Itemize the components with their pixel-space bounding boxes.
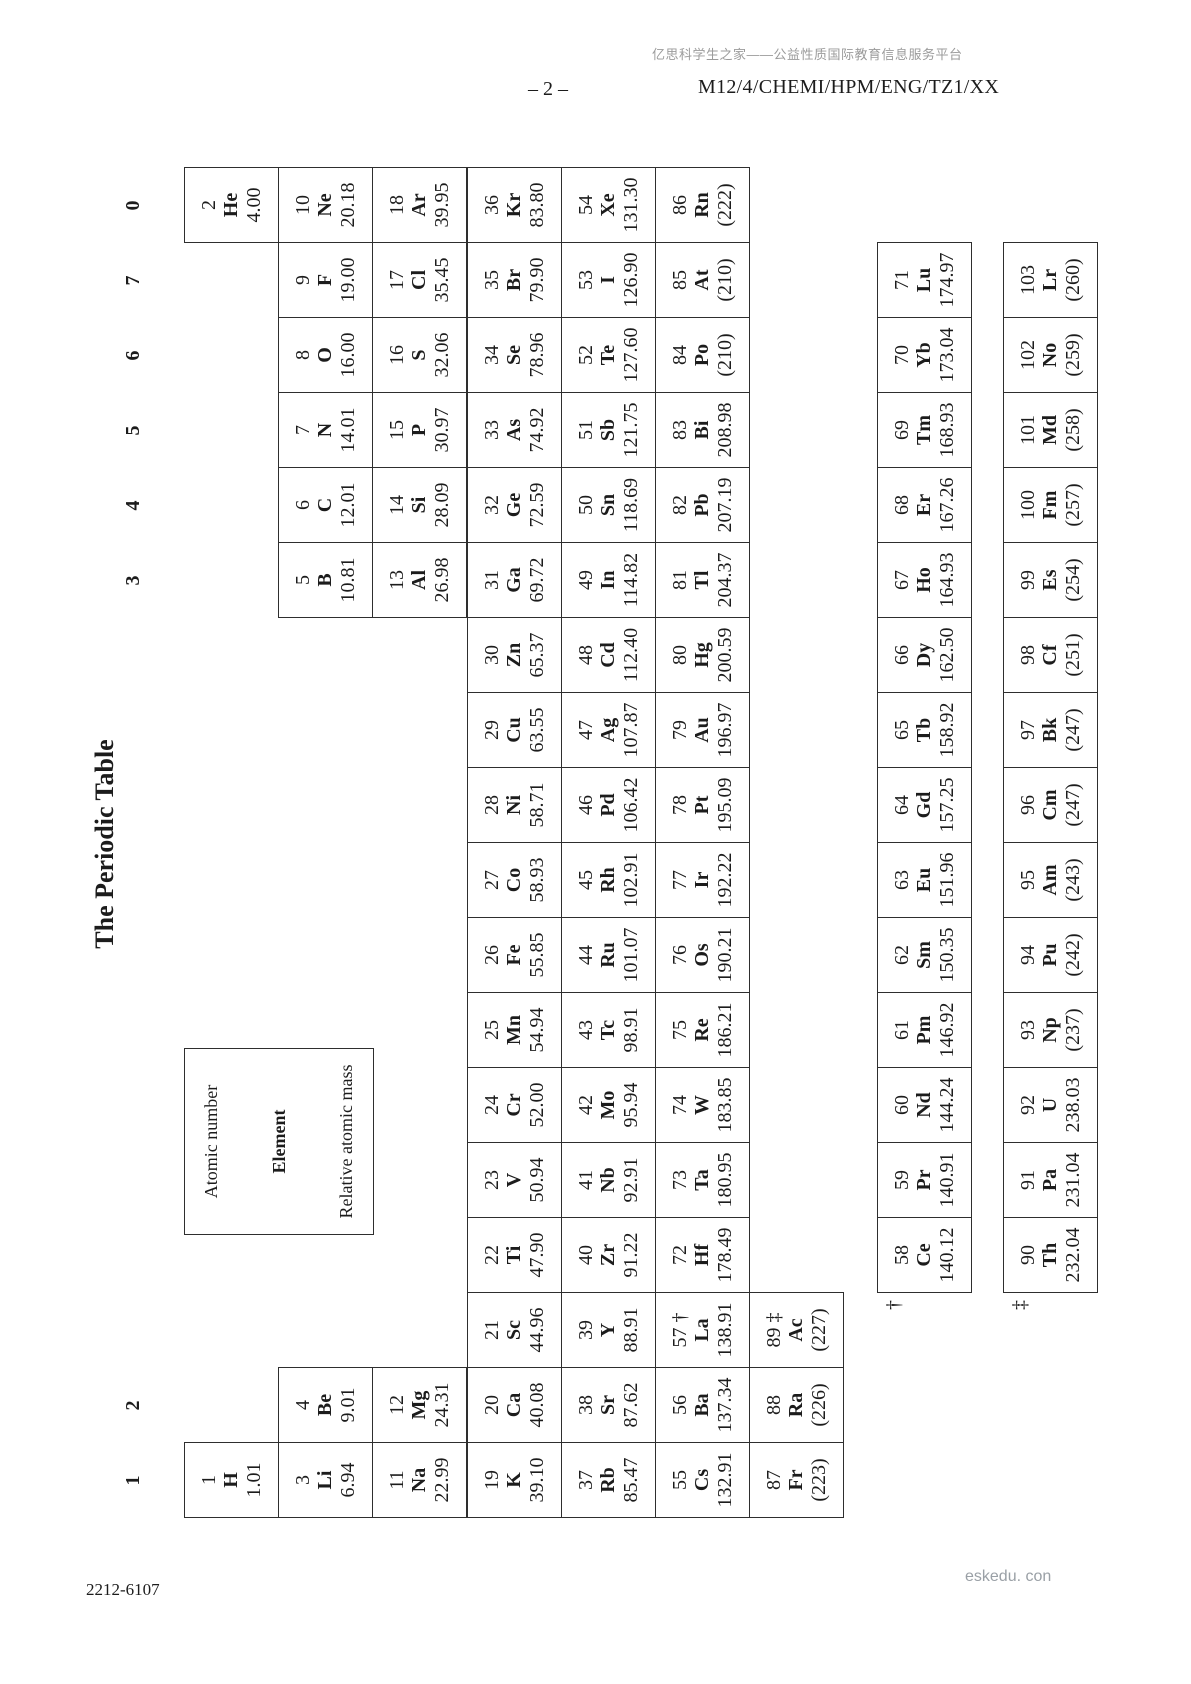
- element-cell-Np: 93Np(237): [1003, 992, 1098, 1068]
- relative-atomic-mass: 19.00: [337, 258, 360, 303]
- element-symbol: Np: [1039, 1017, 1062, 1043]
- element-symbol: Ne: [314, 193, 337, 216]
- element-cell-Tc: 43Tc98.91: [561, 992, 656, 1068]
- element-cell-Ra: 88Ra(226): [749, 1367, 844, 1443]
- element-symbol: Os: [691, 943, 714, 966]
- element-cell-Mg: 12Mg24.31: [372, 1367, 467, 1443]
- element-cell-Be: 4Be9.01: [278, 1367, 373, 1443]
- atomic-number: 59: [891, 1170, 914, 1190]
- element-cell-Pd: 46Pd106.42: [561, 767, 656, 843]
- atomic-number: 55: [669, 1470, 692, 1490]
- element-cell-Xe: 54Xe131.30: [561, 167, 656, 243]
- element-symbol: Ac: [785, 1318, 808, 1341]
- element-symbol: Cs: [691, 1469, 714, 1491]
- relative-atomic-mass: 168.93: [936, 403, 959, 458]
- element-cell-Ni: 28Ni58.71: [467, 767, 562, 843]
- element-cell-Al: 13Al26.98: [372, 542, 467, 618]
- relative-atomic-mass: (243): [1062, 858, 1085, 901]
- element-cell-Cs: 55Cs132.91: [655, 1442, 750, 1518]
- element-cell-Co: 27Co58.93: [467, 842, 562, 918]
- element-cell-Md: 101Md(258): [1003, 392, 1098, 468]
- relative-atomic-mass: 132.91: [714, 1453, 737, 1508]
- relative-atomic-mass: 47.90: [526, 1233, 549, 1278]
- element-symbol: U: [1039, 1098, 1062, 1112]
- element-cell-Pm: 61Pm146.92: [877, 992, 972, 1068]
- relative-atomic-mass: 131.30: [620, 178, 643, 233]
- relative-atomic-mass: 138.91: [714, 1303, 737, 1358]
- element-symbol: Cl: [408, 270, 431, 290]
- element-cell-V: 23V50.94: [467, 1142, 562, 1218]
- element-cell-Th: 90Th232.04: [1003, 1217, 1098, 1293]
- element-cell-Te: 52Te127.60: [561, 317, 656, 393]
- element-symbol: Ge: [503, 493, 526, 517]
- relative-atomic-mass: 173.04: [936, 328, 959, 383]
- document-code: 2212-6107: [86, 1580, 160, 1600]
- atomic-number: 90: [1017, 1245, 1040, 1265]
- element-cell-Cm: 96Cm(247): [1003, 767, 1098, 843]
- paper-code: M12/4/CHEMI/HPM/ENG/TZ1/XX: [698, 76, 999, 99]
- relative-atomic-mass: 20.18: [337, 183, 360, 228]
- atomic-number: 97: [1017, 720, 1040, 740]
- element-cell-Ge: 32Ge72.59: [467, 467, 562, 543]
- atomic-number: 9: [292, 275, 315, 285]
- relative-atomic-mass: 200.59: [714, 628, 737, 683]
- atomic-number: 8: [292, 350, 315, 360]
- atomic-number: 74: [669, 1095, 692, 1115]
- atomic-number: 100: [1017, 490, 1040, 520]
- element-symbol: Re: [691, 1018, 714, 1041]
- element-cell-La: 57 †La138.91: [655, 1292, 750, 1368]
- element-cell-Am: 95Am(243): [1003, 842, 1098, 918]
- atomic-number: 25: [481, 1020, 504, 1040]
- atomic-number: 31: [481, 570, 504, 590]
- atomic-number: 34: [481, 345, 504, 365]
- relative-atomic-mass: 190.21: [714, 928, 737, 983]
- atomic-number: 71: [891, 270, 914, 290]
- element-cell-Ne: 10Ne20.18: [278, 167, 373, 243]
- element-symbol: Ru: [597, 942, 620, 968]
- atomic-number: 53: [575, 270, 598, 290]
- atomic-number: 6: [292, 500, 315, 510]
- element-symbol: He: [220, 193, 243, 217]
- relative-atomic-mass: 208.98: [714, 403, 737, 458]
- relative-atomic-mass: (251): [1062, 633, 1085, 676]
- relative-atomic-mass: 85.47: [620, 1458, 643, 1503]
- element-symbol: Pa: [1039, 1169, 1062, 1191]
- relative-atomic-mass: 137.34: [714, 1378, 737, 1433]
- relative-atomic-mass: 28.09: [431, 483, 454, 528]
- relative-atomic-mass: 26.98: [431, 558, 454, 603]
- element-cell-Hg: 80Hg200.59: [655, 617, 750, 693]
- element-symbol: Am: [1039, 864, 1062, 895]
- watermark-footer-text: eskedu. con: [965, 1568, 1051, 1586]
- element-cell-Os: 76Os190.21: [655, 917, 750, 993]
- element-symbol: As: [503, 419, 526, 441]
- atomic-number: 47: [575, 720, 598, 740]
- element-cell-Lu: 71Lu174.97: [877, 242, 972, 318]
- exam-page: { "page": { "header": { "site_note": "亿思…: [0, 0, 1191, 1684]
- element-cell-I: 53I126.90: [561, 242, 656, 318]
- element-symbol: Se: [503, 345, 526, 365]
- relative-atomic-mass: 58.71: [526, 783, 549, 828]
- element-symbol: Mg: [408, 1391, 431, 1420]
- element-symbol: Te: [597, 345, 620, 365]
- relative-atomic-mass: (247): [1062, 708, 1085, 751]
- atomic-number: 60: [891, 1095, 914, 1115]
- element-symbol: In: [597, 571, 620, 590]
- element-symbol: S: [408, 349, 431, 360]
- atomic-number: 44: [575, 945, 598, 965]
- element-symbol: Cr: [503, 1093, 526, 1116]
- element-symbol: Eu: [913, 868, 936, 892]
- element-cell-Dy: 66Dy162.50: [877, 617, 972, 693]
- relative-atomic-mass: 232.04: [1062, 1228, 1085, 1283]
- element-cell-Mo: 42Mo95.94: [561, 1067, 656, 1143]
- relative-atomic-mass: 121.75: [620, 403, 643, 458]
- atomic-number: 32: [481, 495, 504, 515]
- element-symbol: Al: [408, 570, 431, 590]
- relative-atomic-mass: 178.49: [714, 1228, 737, 1283]
- group-label-5: 5: [122, 393, 145, 468]
- atomic-number: 76: [669, 945, 692, 965]
- atomic-number: 30: [481, 645, 504, 665]
- element-symbol: O: [314, 347, 337, 363]
- relative-atomic-mass: 44.96: [526, 1308, 549, 1353]
- atomic-number: 24: [481, 1095, 504, 1115]
- relative-atomic-mass: 83.80: [526, 183, 549, 228]
- atomic-number: 5: [292, 575, 315, 585]
- relative-atomic-mass: 174.97: [936, 253, 959, 308]
- page-number: – 2 –: [528, 78, 568, 101]
- atomic-number: 67: [891, 570, 914, 590]
- relative-atomic-mass: (247): [1062, 783, 1085, 826]
- element-cell-Fr: 87Fr(223): [749, 1442, 844, 1518]
- element-cell-Ba: 56Ba137.34: [655, 1367, 750, 1443]
- relative-atomic-mass: 65.37: [526, 633, 549, 678]
- group-label-6: 6: [122, 318, 145, 393]
- group-label-2: 2: [122, 1368, 145, 1443]
- element-symbol: F: [314, 274, 337, 286]
- atomic-number: 45: [575, 870, 598, 890]
- element-cell-Li: 3Li6.94: [278, 1442, 373, 1518]
- atomic-number: 69: [891, 420, 914, 440]
- relative-atomic-mass: 231.04: [1062, 1153, 1085, 1208]
- element-symbol: Pb: [691, 493, 714, 516]
- relative-atomic-mass: 63.55: [526, 708, 549, 753]
- element-symbol: No: [1039, 343, 1062, 367]
- relative-atomic-mass: (260): [1062, 258, 1085, 301]
- atomic-number: 3: [292, 1475, 315, 1485]
- element-symbol: Fe: [503, 944, 526, 965]
- atomic-number: 19: [481, 1470, 504, 1490]
- atomic-number: 10: [292, 195, 315, 215]
- atomic-number: 78: [669, 795, 692, 815]
- element-cell-Hf: 72Hf178.49: [655, 1217, 750, 1293]
- relative-atomic-mass: 69.72: [526, 558, 549, 603]
- element-symbol: Co: [503, 868, 526, 892]
- element-symbol: Th: [1039, 1243, 1062, 1267]
- element-symbol: Yb: [913, 342, 936, 368]
- element-cell-Ar: 18Ar39.95: [372, 167, 467, 243]
- element-symbol: H: [220, 1472, 243, 1488]
- relative-atomic-mass: 192.22: [714, 853, 737, 908]
- relative-atomic-mass: 35.45: [431, 258, 454, 303]
- element-symbol: N: [314, 423, 337, 437]
- element-symbol: Bk: [1039, 718, 1062, 742]
- atomic-number: 95: [1017, 870, 1040, 890]
- atomic-number: 29: [481, 720, 504, 740]
- element-cell-Na: 11Na22.99: [372, 1442, 467, 1518]
- element-symbol: C: [314, 498, 337, 512]
- relative-atomic-mass: 127.60: [620, 328, 643, 383]
- relative-atomic-mass: 24.31: [431, 1383, 454, 1428]
- relative-atomic-mass: 40.08: [526, 1383, 549, 1428]
- element-cell-Fe: 26Fe55.85: [467, 917, 562, 993]
- element-symbol: Er: [913, 494, 936, 516]
- relative-atomic-mass: 10.81: [337, 558, 360, 603]
- element-symbol: Fm: [1039, 491, 1062, 520]
- element-symbol: W: [691, 1095, 714, 1115]
- element-symbol: Zn: [503, 643, 526, 667]
- element-cell-In: 49In114.82: [561, 542, 656, 618]
- element-cell-Sc: 21Sc44.96: [467, 1292, 562, 1368]
- element-cell-Zr: 40Zr91.22: [561, 1217, 656, 1293]
- relative-atomic-mass: 112.40: [620, 628, 643, 682]
- relative-atomic-mass: 91.22: [620, 1233, 643, 1278]
- element-symbol: Li: [314, 1471, 337, 1490]
- element-symbol: K: [503, 1472, 526, 1488]
- atomic-number: 16: [386, 345, 409, 365]
- relative-atomic-mass: 144.24: [936, 1078, 959, 1133]
- atomic-number: 37: [575, 1470, 598, 1490]
- legend-element-label: Element: [269, 1110, 290, 1174]
- relative-atomic-mass: 107.87: [620, 703, 643, 758]
- atomic-number: 4: [292, 1400, 315, 1410]
- element-cell-Rn: 86Rn(222): [655, 167, 750, 243]
- element-cell-At: 85At(210): [655, 242, 750, 318]
- element-symbol: Sb: [597, 419, 620, 441]
- relative-atomic-mass: 50.94: [526, 1158, 549, 1203]
- relative-atomic-mass: (222): [714, 183, 737, 226]
- watermark-header-text: 亿思科学生之家——公益性质国际教育信息服务平台: [652, 44, 963, 63]
- atomic-number: 82: [669, 495, 692, 515]
- element-cell-K: 19K39.10: [467, 1442, 562, 1518]
- element-symbol: Nb: [597, 1167, 620, 1193]
- element-symbol: Kr: [503, 193, 526, 217]
- element-cell-Cd: 48Cd112.40: [561, 617, 656, 693]
- element-symbol: Sr: [597, 1395, 620, 1415]
- relative-atomic-mass: 92.91: [620, 1158, 643, 1203]
- element-cell-Ga: 31Ga69.72: [467, 542, 562, 618]
- relative-atomic-mass: (237): [1062, 1008, 1085, 1051]
- atomic-number: 61: [891, 1020, 914, 1040]
- atomic-number: 84: [669, 345, 692, 365]
- element-symbol: Ga: [503, 567, 526, 593]
- element-cell-Sn: 50Sn118.69: [561, 467, 656, 543]
- element-cell-Es: 99Es(254): [1003, 542, 1098, 618]
- atomic-number: 20: [481, 1395, 504, 1415]
- atomic-number: 56: [669, 1395, 692, 1415]
- atomic-number: 87: [763, 1470, 786, 1490]
- element-symbol: Si: [408, 497, 431, 514]
- relative-atomic-mass: 150.35: [936, 928, 959, 983]
- relative-atomic-mass: (258): [1062, 408, 1085, 451]
- atomic-number: 88: [763, 1395, 786, 1415]
- element-cell-Cr: 24Cr52.00: [467, 1067, 562, 1143]
- element-symbol: Ar: [408, 193, 431, 216]
- relative-atomic-mass: 102.91: [620, 853, 643, 908]
- element-cell-Nb: 41Nb92.91: [561, 1142, 656, 1218]
- element-symbol: Mo: [597, 1091, 620, 1120]
- group-label-7: 7: [122, 243, 145, 318]
- element-cell-Mn: 25Mn54.94: [467, 992, 562, 1068]
- atomic-number: 51: [575, 420, 598, 440]
- relative-atomic-mass: 4.00: [243, 188, 266, 223]
- atomic-number: 101: [1017, 415, 1040, 445]
- element-symbol: Ra: [785, 1393, 808, 1417]
- atomic-number: 13: [386, 570, 409, 590]
- relative-atomic-mass: 72.59: [526, 483, 549, 528]
- atomic-number: 39: [575, 1320, 598, 1340]
- element-symbol: Mn: [503, 1015, 526, 1045]
- relative-atomic-mass: 87.62: [620, 1383, 643, 1428]
- element-symbol: Md: [1039, 415, 1062, 445]
- element-symbol: At: [691, 269, 714, 290]
- element-symbol: Ho: [913, 567, 936, 593]
- element-symbol: Pu: [1039, 943, 1062, 966]
- element-symbol: Ir: [691, 872, 714, 889]
- atomic-number: 38: [575, 1395, 598, 1415]
- relative-atomic-mass: 78.96: [526, 333, 549, 378]
- element-cell-N: 7N14.01: [278, 392, 373, 468]
- element-cell-Ag: 47Ag107.87: [561, 692, 656, 768]
- element-symbol: Gd: [913, 792, 936, 819]
- atomic-number: 85: [669, 270, 692, 290]
- element-symbol: Bi: [691, 421, 714, 440]
- relative-atomic-mass: 95.94: [620, 1083, 643, 1128]
- element-cell-B: 5B10.81: [278, 542, 373, 618]
- element-symbol: B: [314, 573, 337, 586]
- relative-atomic-mass: 39.10: [526, 1458, 549, 1503]
- relative-atomic-mass: 79.90: [526, 258, 549, 303]
- atomic-number: 54: [575, 195, 598, 215]
- atomic-number: 15: [386, 420, 409, 440]
- relative-atomic-mass: 162.50: [936, 628, 959, 683]
- element-cell-Tl: 81Tl204.37: [655, 542, 750, 618]
- relative-atomic-mass: 58.93: [526, 858, 549, 903]
- atomic-number: 14: [386, 495, 409, 515]
- element-cell-Fm: 100Fm(257): [1003, 467, 1098, 543]
- element-cell-Er: 68Er167.26: [877, 467, 972, 543]
- relative-atomic-mass: 14.01: [337, 408, 360, 453]
- element-cell-Pu: 94Pu(242): [1003, 917, 1098, 993]
- relative-atomic-mass: 52.00: [526, 1083, 549, 1128]
- relative-atomic-mass: 16.00: [337, 333, 360, 378]
- relative-atomic-mass: 118.69: [620, 478, 643, 532]
- element-cell-O: 8O16.00: [278, 317, 373, 393]
- element-symbol: Ta: [691, 1169, 714, 1191]
- relative-atomic-mass: 6.94: [337, 1463, 360, 1498]
- element-symbol: Pd: [597, 793, 620, 816]
- element-symbol: Sm: [913, 941, 936, 969]
- atomic-number: 83: [669, 420, 692, 440]
- relative-atomic-mass: (223): [808, 1458, 831, 1501]
- relative-atomic-mass: 9.01: [337, 1388, 360, 1423]
- element-cell-Tb: 65Tb158.92: [877, 692, 972, 768]
- element-symbol: Es: [1039, 569, 1062, 590]
- atomic-number: 33: [481, 420, 504, 440]
- element-cell-No: 102No(259): [1003, 317, 1098, 393]
- atomic-number: 48: [575, 645, 598, 665]
- legend-relative-atomic-mass-label: Relative atomic mass: [336, 1065, 357, 1219]
- relative-atomic-mass: (254): [1062, 558, 1085, 601]
- atomic-number: 26: [481, 945, 504, 965]
- element-cell-Kr: 36Kr83.80: [467, 167, 562, 243]
- element-cell-Sm: 62Sm150.35: [877, 917, 972, 993]
- relative-atomic-mass: 30.97: [431, 408, 454, 453]
- atomic-number: 80: [669, 645, 692, 665]
- relative-atomic-mass: 183.85: [714, 1078, 737, 1133]
- element-cell-Si: 14Si28.09: [372, 467, 467, 543]
- element-symbol: Lr: [1039, 269, 1062, 291]
- element-cell-Pt: 78Pt195.09: [655, 767, 750, 843]
- atomic-number: 99: [1017, 570, 1040, 590]
- element-cell-Ca: 20Ca40.08: [467, 1367, 562, 1443]
- element-cell-P: 15P30.97: [372, 392, 467, 468]
- element-symbol: Cd: [597, 642, 620, 668]
- relative-atomic-mass: 151.96: [936, 853, 959, 908]
- atomic-number: 72: [669, 1245, 692, 1265]
- atomic-number: 49: [575, 570, 598, 590]
- relative-atomic-mass: 146.92: [936, 1003, 959, 1058]
- element-cell-Ta: 73Ta180.95: [655, 1142, 750, 1218]
- element-cell-Re: 75Re186.21: [655, 992, 750, 1068]
- element-symbol: Tb: [913, 718, 936, 742]
- relative-atomic-mass: (259): [1062, 333, 1085, 376]
- relative-atomic-mass: (210): [714, 258, 737, 301]
- atomic-number: 96: [1017, 795, 1040, 815]
- relative-atomic-mass: 140.91: [936, 1153, 959, 1208]
- relative-atomic-mass: 55.85: [526, 933, 549, 978]
- relative-atomic-mass: 164.93: [936, 553, 959, 608]
- actinide-footnote-double-dagger: ‡: [1009, 1300, 1032, 1340]
- atomic-number: 64: [891, 795, 914, 815]
- atomic-number: 43: [575, 1020, 598, 1040]
- element-symbol: Zr: [597, 1244, 620, 1266]
- element-cell-C: 6C12.01: [278, 467, 373, 543]
- element-cell-F: 9F19.00: [278, 242, 373, 318]
- atomic-number: 7: [292, 425, 315, 435]
- element-symbol: Au: [691, 717, 714, 743]
- element-cell-U: 92U238.03: [1003, 1067, 1098, 1143]
- atomic-number: 17: [386, 270, 409, 290]
- element-cell-Tm: 69Tm168.93: [877, 392, 972, 468]
- element-cell-Sr: 38Sr87.62: [561, 1367, 656, 1443]
- element-cell-Ti: 22Ti47.90: [467, 1217, 562, 1293]
- element-cell-W: 74W183.85: [655, 1067, 750, 1143]
- element-symbol: Tc: [597, 1020, 620, 1040]
- relative-atomic-mass: 158.92: [936, 703, 959, 758]
- element-symbol: Br: [503, 269, 526, 291]
- element-cell-Lr: 103Lr(260): [1003, 242, 1098, 318]
- element-cell-Bi: 83Bi208.98: [655, 392, 750, 468]
- element-cell-Pr: 59Pr140.91: [877, 1142, 972, 1218]
- relative-atomic-mass: 106.42: [620, 778, 643, 833]
- relative-atomic-mass: 180.95: [714, 1153, 737, 1208]
- atomic-number: 12: [386, 1395, 409, 1415]
- element-cell-Cu: 29Cu63.55: [467, 692, 562, 768]
- element-cell-Cf: 98Cf(251): [1003, 617, 1098, 693]
